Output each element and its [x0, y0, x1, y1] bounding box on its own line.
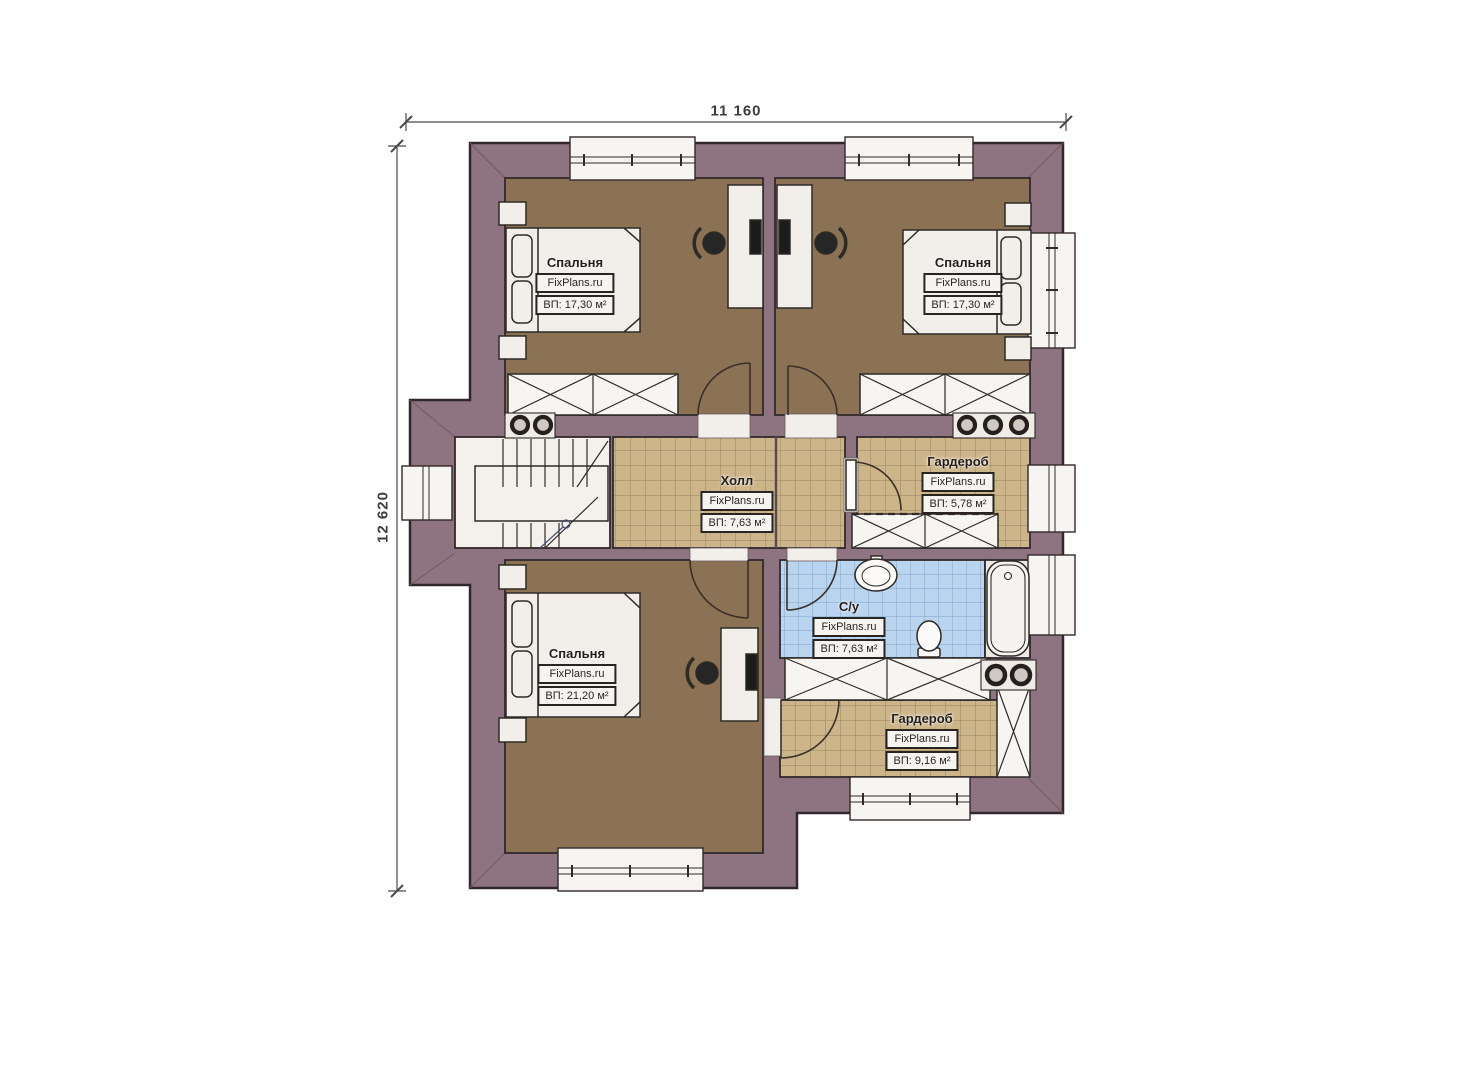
room-label-wardrobe-upper: Гардероб FixPlans.ru ВП: 5,78 м² [921, 454, 994, 514]
chair-icon [815, 232, 837, 254]
chair-icon [696, 662, 718, 684]
window-right-bedroom [1028, 233, 1075, 348]
window-right-wardrobe [1028, 465, 1075, 532]
closet-wardrobe-upper [852, 514, 998, 548]
room-area-label: ВП: 21,20 м² [537, 686, 616, 706]
closet-bedroom-top-left [508, 374, 678, 415]
floor-plan-page: 11 160 12 620 Спальня FixPlans.ru ВП: 17… [0, 0, 1473, 1080]
closet-bedroom-top-right [860, 374, 1030, 415]
floor-plan-drawing [0, 0, 1473, 1080]
room-brand: FixPlans.ru [700, 491, 773, 511]
room-area-label: ВП: 7,63 м² [700, 513, 773, 533]
room-brand: FixPlans.ru [537, 664, 616, 684]
dimension-height-label: 12 620 [375, 491, 392, 543]
room-label-bedroom-top-left: Спальня FixPlans.ru ВП: 17,30 м² [535, 255, 614, 315]
room-area-label: ВП: 17,30 м² [535, 295, 614, 315]
room-brand: FixPlans.ru [885, 729, 958, 749]
closet-bathroom-south [785, 658, 990, 700]
window-bottom-bedroom [558, 848, 703, 891]
room-area-label: ВП: 5,78 м² [921, 494, 994, 514]
toilet-icon [917, 621, 941, 657]
room-label-hall: Холл FixPlans.ru ВП: 7,63 м² [700, 473, 773, 533]
vent-circles-right [953, 413, 1035, 438]
room-name: Спальня [537, 646, 616, 661]
window-left-stairs [402, 466, 452, 520]
window-top-right [845, 137, 973, 180]
vent-circles-left [505, 413, 555, 438]
room-label-bathroom: С/у FixPlans.ru ВП: 7,63 м² [812, 599, 885, 659]
bathtub-icon [987, 561, 1029, 656]
window-top-left [570, 137, 695, 180]
dimension-width-label: 11 160 [710, 103, 761, 120]
window-bottom-wardrobe [850, 777, 970, 820]
room-area-label: ВП: 17,30 м² [923, 295, 1002, 315]
room-name: Спальня [535, 255, 614, 270]
room-area-label: ВП: 7,63 м² [812, 639, 885, 659]
room-label-bedroom-bottom: Спальня FixPlans.ru ВП: 21,20 м² [537, 646, 616, 706]
room-name: Гардероб [921, 454, 994, 469]
chair-icon [703, 232, 725, 254]
room-brand: FixPlans.ru [923, 273, 1002, 293]
closet-wardrobe-lower-east [997, 686, 1030, 777]
room-brand: FixPlans.ru [921, 472, 994, 492]
room-label-wardrobe-lower: Гардероб FixPlans.ru ВП: 9,16 м² [885, 711, 958, 771]
room-name: Гардероб [885, 711, 958, 726]
window-right-bathroom [1028, 555, 1075, 635]
room-name: Спальня [923, 255, 1002, 270]
room-name: Холл [700, 473, 773, 488]
room-name: С/у [812, 599, 885, 614]
room-label-bedroom-top-right: Спальня FixPlans.ru ВП: 17,30 м² [923, 255, 1002, 315]
vent-circles-bath [981, 660, 1036, 690]
room-brand: FixPlans.ru [812, 617, 885, 637]
room-area-label: ВП: 9,16 м² [885, 751, 958, 771]
room-brand: FixPlans.ru [535, 273, 614, 293]
